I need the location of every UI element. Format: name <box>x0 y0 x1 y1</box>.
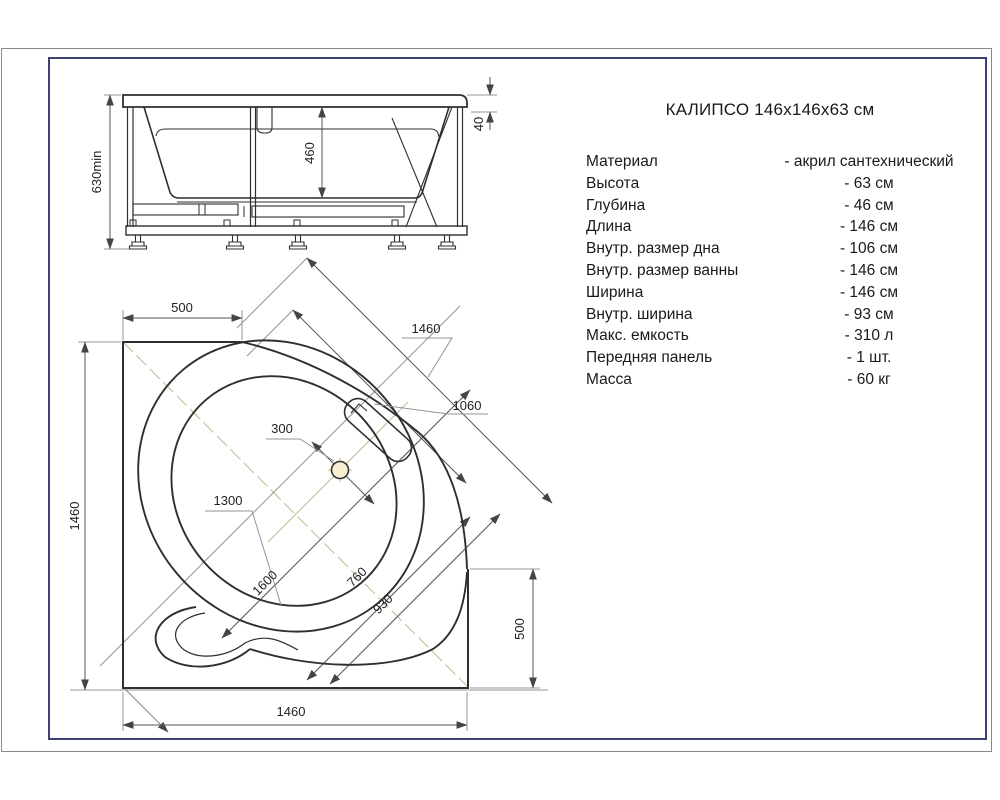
spec-value: - 1 шт. <box>776 347 962 369</box>
adjustable-feet <box>130 235 456 249</box>
rim-profile <box>123 95 467 107</box>
spec-label: Глубина <box>586 195 776 217</box>
dim-right-offset: 500 <box>512 618 527 640</box>
spec-label: Ширина <box>586 282 776 304</box>
technical-drawing: 630min 460 40 <box>0 0 1000 800</box>
spec-value: - 146 см <box>776 260 962 282</box>
spec-label: Внутр. размер ванны <box>586 260 776 282</box>
spec-value: - 46 см <box>776 195 962 217</box>
elevation-view: 630min 460 40 <box>89 77 497 249</box>
spec-row: Высота - 63 см <box>586 173 962 195</box>
rail-left <box>133 204 238 215</box>
spec-label: Внутр. размер дна <box>586 238 776 260</box>
dim-diagonal-width: 1460 <box>412 321 441 336</box>
dim-bowl-width: 1300 <box>214 493 243 508</box>
page-title: КАЛИПСО 146х146х63 см <box>565 100 975 120</box>
dim-drain-offset: 300 <box>271 421 293 436</box>
dim-top-offset: 500 <box>171 300 193 315</box>
dim-overall-height: 630min <box>89 151 104 194</box>
spec-value: - 60 кг <box>776 369 962 391</box>
spec-table: Материал - акрил сантехнический Высота -… <box>586 151 962 391</box>
spec-row: Материал - акрил сантехнический <box>586 151 962 173</box>
spec-value: - 146 см <box>776 282 962 304</box>
dim-headrest: 1060 <box>453 398 482 413</box>
spec-row: Ширина - 146 см <box>586 282 962 304</box>
spec-value: - 63 см <box>776 173 962 195</box>
spec-value: - 310 л <box>776 325 962 347</box>
dim-line-1600 <box>222 390 470 638</box>
spec-sheet: 630min 460 40 <box>0 0 1000 800</box>
spec-row: Внутр. размер дна - 106 см <box>586 238 962 260</box>
spec-row: Макс. емкость - 310 л <box>586 325 962 347</box>
spec-label: Внутр. ширина <box>586 304 776 326</box>
base-channel <box>126 226 467 235</box>
spec-label: Передняя панель <box>586 347 776 369</box>
spec-row: Внутр. размер ванны - 146 см <box>586 260 962 282</box>
lobe-s-curve <box>245 638 298 650</box>
dim-bottom-side: 1460 <box>277 704 306 719</box>
ext-1460-left <box>78 342 121 690</box>
spec-label: Материал <box>586 151 776 173</box>
spec-label: Макс. емкость <box>586 325 776 347</box>
spec-row: Передняя панель - 1 шт. <box>586 347 962 369</box>
spec-value: - акрил сантехнический <box>776 151 962 173</box>
rail-right <box>252 206 404 217</box>
ext-lines-40 <box>467 95 497 112</box>
dim-rim-height: 40 <box>471 117 486 131</box>
ext-500-right <box>470 569 540 688</box>
spec-row: Глубина - 46 см <box>586 195 962 217</box>
spec-row: Длина - 146 см <box>586 216 962 238</box>
ext-lines-630 <box>104 95 129 249</box>
plan-view: 500 1460 1460 500 1460 1060 300 1300 <box>67 258 552 732</box>
base-clips <box>130 220 398 226</box>
spec-row: Внутр. ширина - 93 см <box>586 304 962 326</box>
lobe-inner <box>176 613 245 656</box>
tub-profile <box>144 107 449 198</box>
dim-line-930 <box>330 514 500 684</box>
leader-1460-diag <box>402 338 452 377</box>
spec-value: - 146 см <box>776 216 962 238</box>
lobe-outer <box>156 607 250 667</box>
dim-diagonal-length: 1600 <box>249 567 280 598</box>
dim-left-side: 1460 <box>67 502 82 531</box>
spec-label: Высота <box>586 173 776 195</box>
spec-label: Длина <box>586 216 776 238</box>
construction-lines <box>100 258 460 724</box>
dim-inner-width-1: 760 <box>344 564 370 590</box>
spec-value: - 106 см <box>776 238 962 260</box>
spec-row: Масса - 60 кг <box>586 369 962 391</box>
spec-label: Масса <box>586 369 776 391</box>
dim-inner-depth: 460 <box>302 142 317 164</box>
spec-value: - 93 см <box>776 304 962 326</box>
